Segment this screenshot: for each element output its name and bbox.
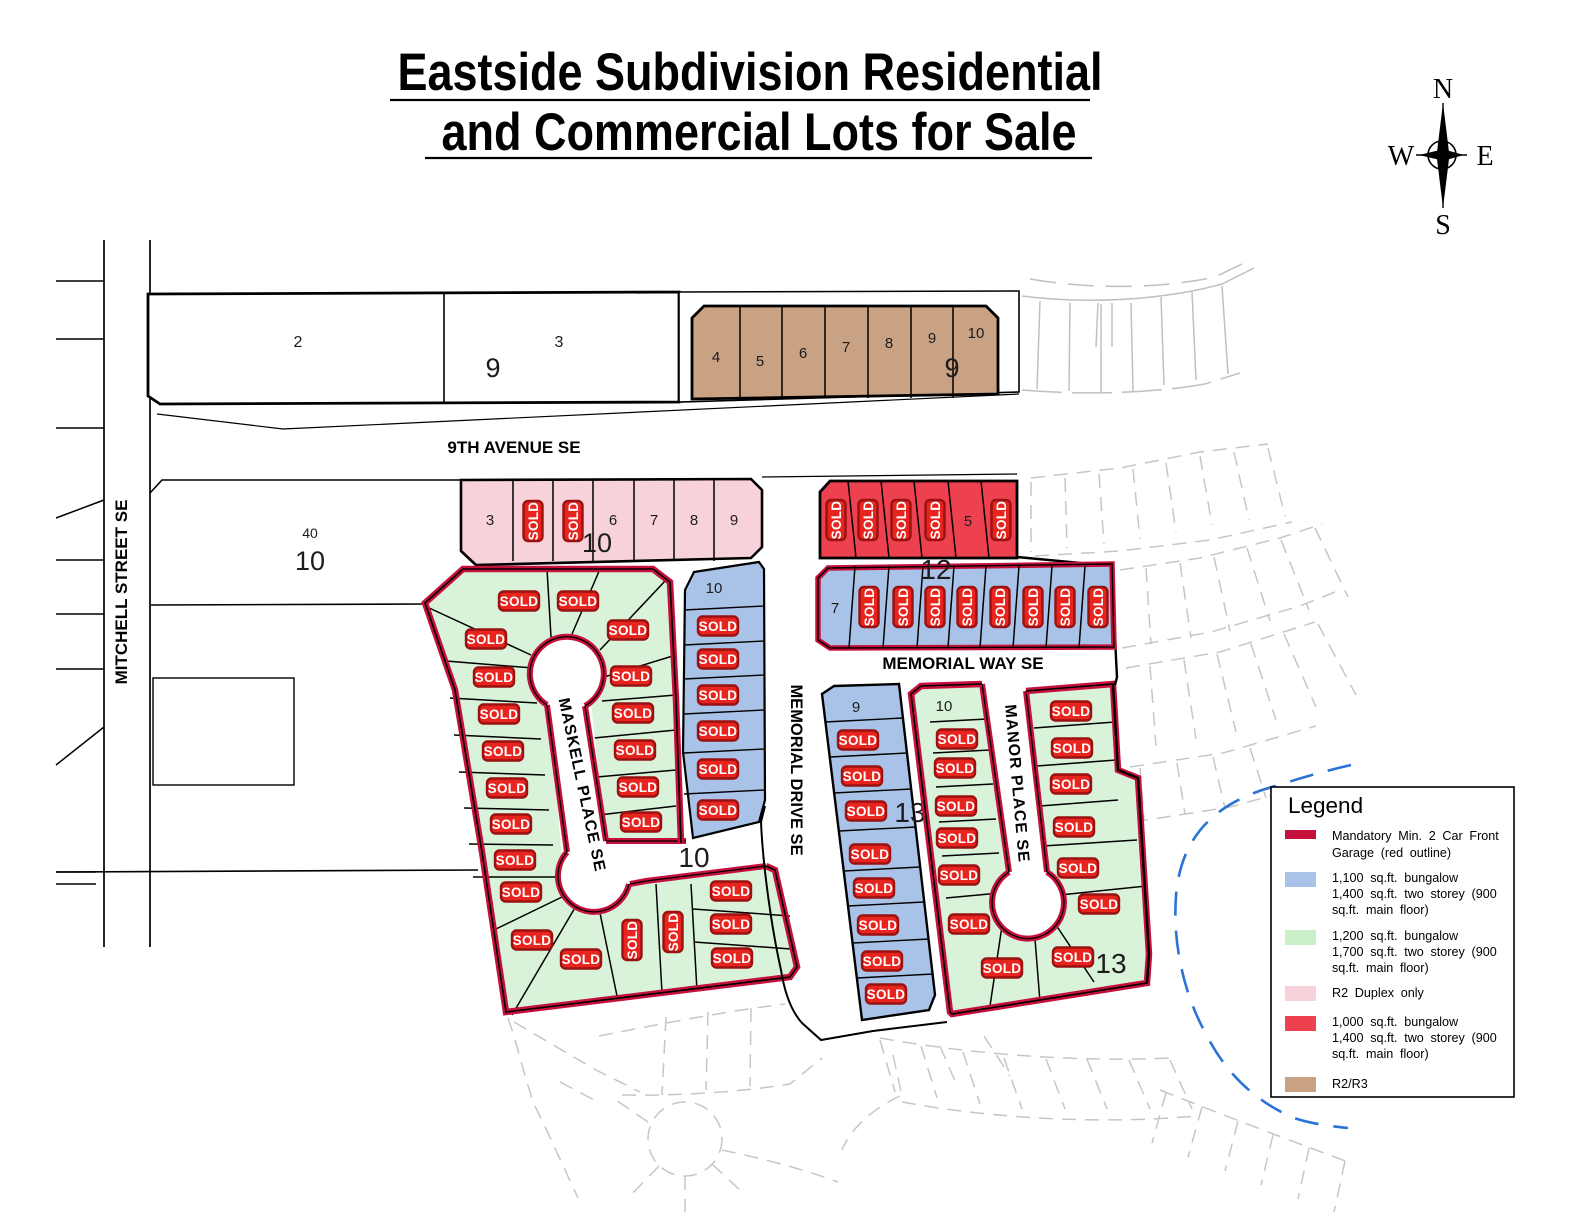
svg-text:10: 10 [582, 528, 612, 558]
svg-text:9: 9 [928, 330, 936, 347]
svg-text:6: 6 [609, 512, 617, 529]
svg-text:10: 10 [706, 580, 723, 597]
svg-text:10: 10 [968, 325, 985, 342]
svg-text:sq.ft. main floor): sq.ft. main floor) [1332, 903, 1429, 917]
svg-text:7: 7 [842, 339, 850, 356]
svg-text:40: 40 [302, 525, 318, 541]
svg-text:10: 10 [678, 842, 709, 873]
svg-text:7: 7 [831, 600, 839, 617]
svg-text:4: 4 [712, 349, 720, 366]
svg-text:1,700 sq.ft. two storey (900: 1,700 sq.ft. two storey (900 [1332, 945, 1497, 959]
svg-text:Legend: Legend [1288, 793, 1363, 818]
svg-text:10: 10 [295, 546, 325, 576]
svg-text:1,000 sq.ft. bungalow: 1,000 sq.ft. bungalow [1332, 1015, 1459, 1029]
svg-text:sq.ft. main floor): sq.ft. main floor) [1332, 1047, 1429, 1061]
svg-text:Eastside Subdivision Residenti: Eastside Subdivision Residential [397, 44, 1102, 102]
svg-text:9: 9 [485, 353, 500, 383]
svg-text:and Commercial Lots for Sale: and Commercial Lots for Sale [441, 104, 1076, 162]
svg-text:E: E [1476, 141, 1493, 172]
svg-text:3: 3 [486, 512, 494, 529]
svg-text:1,200 sq.ft. bungalow: 1,200 sq.ft. bungalow [1332, 929, 1459, 943]
svg-text:MITCHELL STREET SE: MITCHELL STREET SE [112, 500, 131, 685]
svg-text:10: 10 [936, 698, 953, 715]
svg-text:5: 5 [964, 513, 972, 530]
svg-text:R2 Duplex only: R2 Duplex only [1332, 986, 1425, 1000]
svg-text:Mandatory Min. 2 Car Front: Mandatory Min. 2 Car Front [1332, 829, 1499, 843]
svg-text:Garage (red outline): Garage (red outline) [1332, 846, 1451, 860]
svg-text:9: 9 [730, 512, 738, 529]
svg-text:1,400 sq.ft. two storey (900: 1,400 sq.ft. two storey (900 [1332, 1031, 1497, 1045]
svg-text:MEMORIAL DRIVE SE: MEMORIAL DRIVE SE [787, 684, 805, 855]
svg-text:MEMORIAL WAY SE: MEMORIAL WAY SE [882, 654, 1043, 673]
svg-text:3: 3 [555, 334, 564, 351]
svg-text:R2/R3: R2/R3 [1332, 1077, 1368, 1091]
svg-text:9TH AVENUE SE: 9TH AVENUE SE [447, 438, 580, 457]
svg-text:2: 2 [294, 334, 303, 351]
svg-text:5: 5 [756, 353, 764, 370]
svg-text:9: 9 [852, 699, 860, 716]
svg-text:9: 9 [944, 353, 959, 383]
svg-text:6: 6 [799, 345, 807, 362]
svg-text:sq.ft. main floor): sq.ft. main floor) [1332, 961, 1429, 975]
svg-text:13: 13 [1095, 948, 1126, 979]
svg-text:8: 8 [690, 512, 698, 529]
svg-text:13: 13 [894, 797, 925, 828]
svg-text:S: S [1435, 210, 1451, 241]
svg-text:N: N [1433, 74, 1453, 105]
svg-text:7: 7 [650, 512, 658, 529]
svg-text:W: W [1388, 141, 1415, 172]
svg-text:12: 12 [920, 554, 951, 585]
svg-text:1,100 sq.ft. bungalow: 1,100 sq.ft. bungalow [1332, 871, 1459, 885]
svg-text:8: 8 [885, 335, 893, 352]
svg-text:1,400 sq.ft. two storey (900: 1,400 sq.ft. two storey (900 [1332, 887, 1497, 901]
